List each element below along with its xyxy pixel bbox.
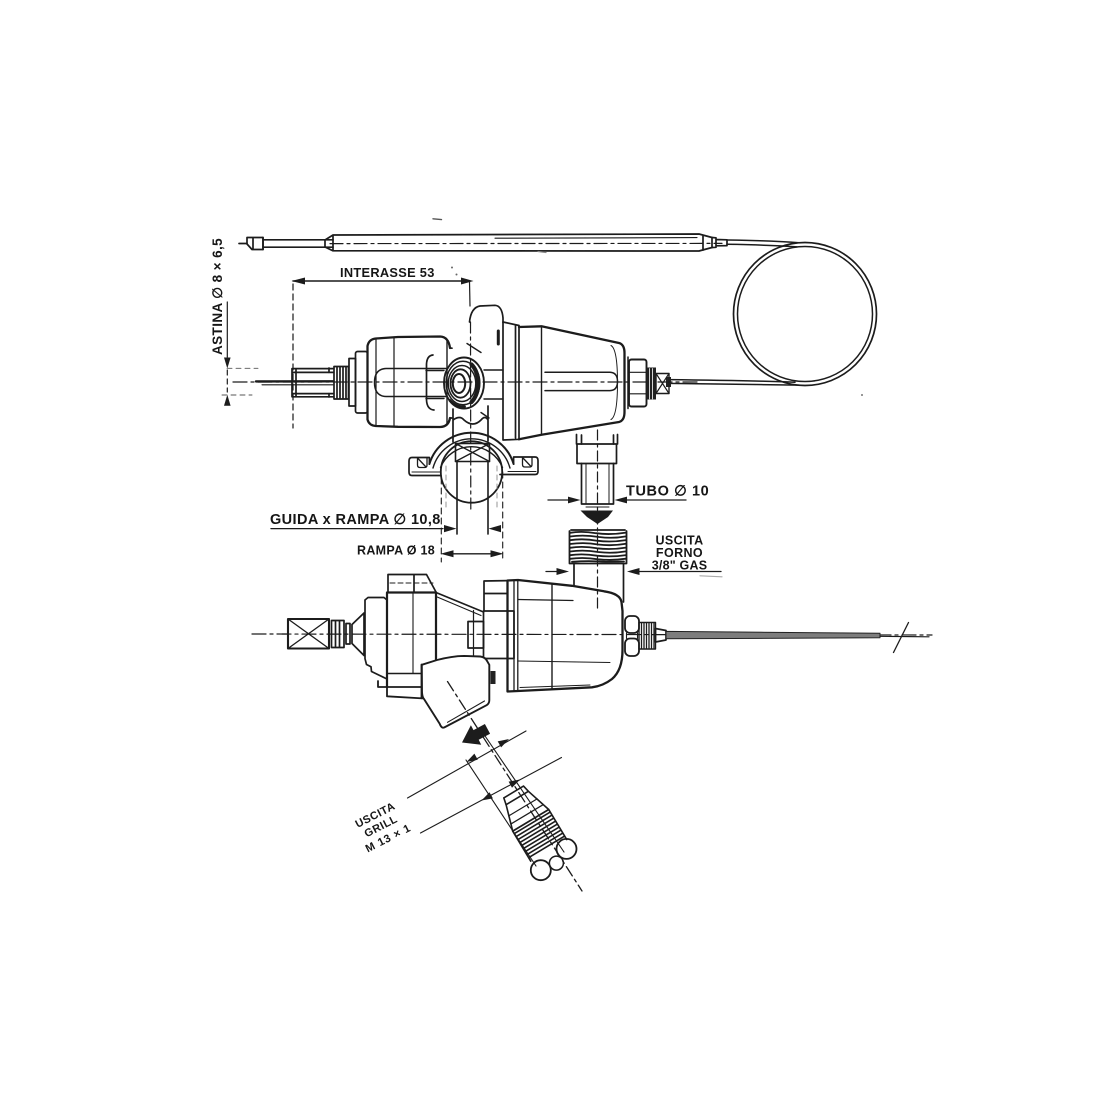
svg-text:GUIDA x RAMPA ∅ 10,8: GUIDA x RAMPA ∅ 10,8 — [270, 512, 441, 528]
svg-text:TUBO ∅ 10: TUBO ∅ 10 — [626, 484, 709, 500]
svg-text:RAMPA Ø 18: RAMPA Ø 18 — [357, 544, 435, 558]
svg-text:ASTINA ∅ 8 × 6,5: ASTINA ∅ 8 × 6,5 — [210, 238, 225, 355]
svg-text:3/8" GAS: 3/8" GAS — [652, 559, 707, 573]
svg-text:INTERASSE 53: INTERASSE 53 — [340, 265, 435, 280]
